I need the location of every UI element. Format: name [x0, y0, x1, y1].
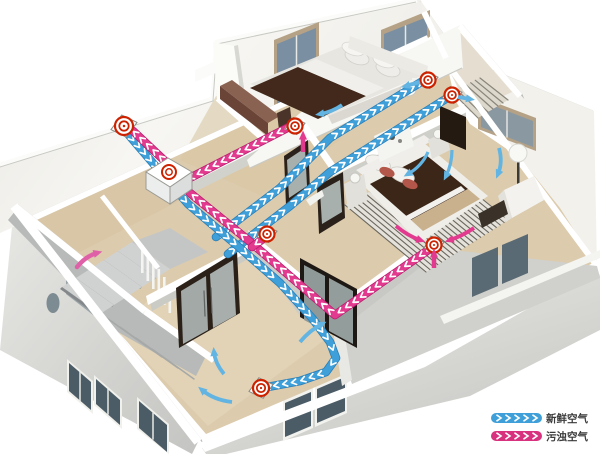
svg-text:新鲜空气: 新鲜空气	[546, 412, 588, 425]
svg-text:污浊空气: 污浊空气	[546, 430, 588, 443]
